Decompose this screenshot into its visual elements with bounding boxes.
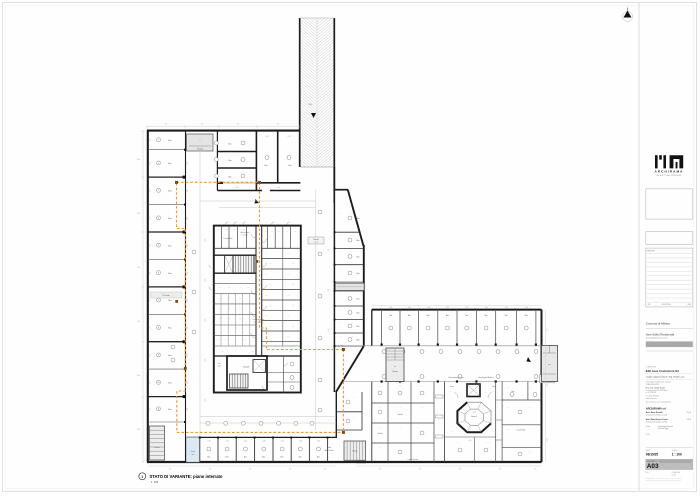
svg-text:1: 1: [141, 475, 143, 479]
svg-text:1.30: 1.30: [328, 248, 330, 251]
svg-text:1.48: 1.48: [265, 315, 268, 317]
svg-text:1.48: 1.48: [287, 315, 290, 317]
svg-text:1.48: 1.48: [449, 391, 452, 393]
svg-text:11: 11: [158, 409, 160, 411]
svg-text:1.2: 1.2: [351, 322, 353, 324]
svg-text:1.2: 1.2: [340, 251, 342, 253]
svg-text:5.00: 5.00: [187, 381, 189, 384]
svg-text:DESCRIZIONE: DESCRIZIONE: [662, 304, 671, 306]
svg-text:2.74: 2.74: [150, 326, 152, 329]
svg-text:06/10/25: 06/10/25: [646, 452, 659, 456]
svg-text:Box: Box: [356, 240, 359, 242]
svg-text:FIRMA: FIRMA: [686, 411, 690, 414]
svg-text:1.48: 1.48: [228, 287, 231, 289]
svg-text:Arch. Marco Rondelli: Arch. Marco Rondelli: [646, 411, 663, 414]
svg-text:1.48: 1.48: [233, 229, 236, 231]
svg-text:Box: Box: [168, 300, 171, 302]
svg-text:9: 9: [158, 355, 159, 357]
svg-text:Box: Box: [299, 457, 302, 459]
svg-text:REV.: REV.: [648, 304, 652, 306]
svg-text:Sup. 22.15mq: Sup. 22.15mq: [254, 322, 264, 324]
svg-text:3.20: 3.20: [547, 438, 549, 441]
svg-text:Box: Box: [168, 382, 171, 384]
svg-text:2.48: 2.48: [289, 469, 292, 471]
svg-text:2.48: 2.48: [249, 469, 252, 471]
svg-text:1.48: 1.48: [287, 295, 290, 297]
svg-text:Cantina: Cantina: [377, 432, 383, 435]
svg-text:4.08: 4.08: [469, 440, 472, 442]
svg-text:2.48: 2.48: [299, 441, 302, 443]
svg-text:2.48: 2.48: [262, 441, 265, 443]
svg-text:4: 4: [158, 218, 159, 220]
svg-text:1.48: 1.48: [421, 407, 424, 409]
svg-text:1.48: 1.48: [487, 442, 490, 444]
svg-text:1.48: 1.48: [225, 229, 228, 231]
svg-text:1.48: 1.48: [292, 263, 295, 265]
svg-text:5.00: 5.00: [187, 326, 189, 329]
svg-text:2.18: 2.18: [534, 469, 537, 471]
svg-text:2.74: 2.74: [150, 354, 152, 357]
svg-text:Scala B: Scala B: [243, 367, 250, 369]
svg-text:4.50: 4.50: [205, 238, 207, 241]
svg-text:Box: Box: [408, 315, 411, 317]
svg-text:2.48: 2.48: [408, 307, 411, 309]
svg-text:1.48: 1.48: [269, 263, 272, 265]
svg-text:8: 8: [158, 327, 159, 329]
svg-text:1.48: 1.48: [379, 386, 382, 388]
svg-text:Nave Edifici Residenziali: Nave Edifici Residenziali: [646, 333, 675, 337]
svg-text:1 : 100: 1 : 100: [672, 452, 682, 456]
svg-text:Box: Box: [281, 457, 284, 459]
svg-text:2.18: 2.18: [459, 469, 462, 471]
svg-text:Box: Box: [356, 218, 359, 220]
svg-text:2.48: 2.48: [244, 441, 247, 443]
svg-text:2.48: 2.48: [209, 469, 212, 471]
svg-text:Box: Box: [168, 409, 171, 411]
svg-text:5.00: 5.00: [187, 408, 189, 411]
svg-text:1.48: 1.48: [239, 308, 242, 310]
svg-text:1.2: 1.2: [340, 213, 342, 215]
svg-text:2.48: 2.48: [324, 469, 327, 471]
svg-text:2.48: 2.48: [446, 307, 449, 309]
svg-text:1.48: 1.48: [457, 442, 460, 444]
svg-text:STATO DI VARIANTE: piano inter: STATO DI VARIANTE: piano interrato: [150, 474, 223, 479]
svg-text:2.50: 2.50: [137, 267, 140, 269]
svg-text:1.48: 1.48: [269, 326, 272, 328]
svg-text:1.48: 1.48: [217, 229, 220, 231]
svg-text:1.48: 1.48: [292, 326, 295, 328]
svg-text:5.00: 5.00: [187, 354, 189, 357]
svg-text:1.48: 1.48: [399, 407, 402, 409]
svg-text:2.50: 2.50: [137, 375, 140, 377]
svg-text:1.48: 1.48: [292, 305, 295, 307]
svg-text:Box: Box: [228, 144, 231, 146]
svg-text:Box: Box: [168, 163, 171, 165]
svg-text:Box: Box: [228, 160, 231, 162]
svg-text:Box: Box: [168, 245, 171, 247]
svg-text:rev. 02: rev. 02: [672, 474, 676, 476]
svg-text:Locale Filtri: Locale Filtri: [224, 237, 233, 240]
svg-text:Box: Box: [168, 140, 171, 142]
svg-text:Antincendio: Antincendio: [241, 231, 250, 234]
svg-text:3.20: 3.20: [547, 328, 549, 331]
svg-text:2.48: 2.48: [277, 124, 280, 126]
svg-text:1.06: 1.06: [236, 187, 239, 189]
svg-text:1.48: 1.48: [217, 339, 220, 341]
svg-text:2.50: 2.50: [137, 321, 140, 323]
svg-text:Vano Impianti Elettrico: Vano Impianti Elettrico: [478, 376, 494, 379]
svg-text:1.48: 1.48: [239, 318, 242, 320]
svg-text:1.2: 1.2: [353, 417, 355, 419]
svg-text:4.50: 4.50: [205, 318, 207, 321]
svg-text:ARCHITETTURA E INGEGNERIA: ARCHITETTURA E INGEGNERIA: [657, 174, 682, 177]
svg-text:1.48: 1.48: [289, 351, 292, 353]
svg-text:1.48: 1.48: [271, 231, 274, 233]
svg-text:1.2: 1.2: [340, 336, 342, 338]
svg-text:1.2: 1.2: [340, 269, 342, 271]
svg-text:1.48: 1.48: [228, 298, 231, 300]
svg-text:4.50: 4.50: [205, 278, 207, 281]
svg-text:Cantina: Cantina: [397, 413, 403, 416]
svg-text:P. Disab: P. Disab: [162, 295, 170, 297]
svg-text:1.48: 1.48: [225, 339, 228, 341]
svg-text:Box: Box: [505, 315, 508, 317]
svg-text:4.50: 4.50: [205, 358, 207, 361]
svg-text:1.48: 1.48: [265, 274, 268, 276]
svg-text:2.48: 2.48: [207, 441, 210, 443]
svg-text:2.48: 2.48: [389, 307, 392, 309]
svg-text:REVISIONI: REVISIONI: [647, 250, 655, 252]
svg-text:Moto e Disab: Moto e Disab: [325, 449, 334, 452]
svg-text:Locale Filtro: Locale Filtro: [517, 429, 526, 432]
svg-text:1.48: 1.48: [219, 298, 222, 300]
svg-text:1.48: 1.48: [221, 351, 224, 353]
svg-text:1.48: 1.48: [287, 274, 290, 276]
svg-text:Geom. Andrea Valsecchi: Geom. Andrea Valsecchi: [658, 425, 674, 428]
svg-text:5.00: 5.00: [187, 244, 189, 247]
svg-text:Box: Box: [264, 165, 267, 167]
svg-text:1.48: 1.48: [286, 231, 289, 233]
svg-text:Edil Luce Costruzioni Srl: Edil Luce Costruzioni Srl: [646, 369, 679, 373]
svg-text:Questo disegno e di proprieta: Questo disegno e di proprieta di ARCHIRA…: [646, 477, 682, 480]
svg-text:su: su: [394, 366, 396, 368]
svg-text:Box: Box: [446, 315, 449, 317]
svg-text:1.48: 1.48: [399, 386, 402, 388]
svg-text:Box: Box: [168, 355, 171, 357]
svg-text:Uscita: Uscita: [155, 446, 160, 449]
svg-text:1.48: 1.48: [507, 387, 510, 389]
svg-text:CREAZIONE: CREAZIONE: [672, 471, 680, 474]
svg-text:1.48: 1.48: [507, 407, 510, 409]
svg-text:Via Paolo Alberto Besozzi 21-2: Via Paolo Alberto Besozzi 21-23: [646, 336, 668, 339]
svg-text:Box: Box: [465, 315, 468, 317]
svg-text:1.48: 1.48: [379, 427, 382, 429]
svg-text:7: 7: [158, 300, 159, 302]
svg-text:2.74: 2.74: [150, 381, 152, 384]
svg-text:1.48: 1.48: [421, 386, 424, 388]
svg-text:2.74: 2.74: [150, 244, 152, 247]
svg-text:2.74: 2.74: [150, 189, 152, 192]
svg-text:+0.00: +0.00: [472, 412, 476, 414]
svg-text:1.48: 1.48: [379, 407, 382, 409]
svg-text:Collab.:: Collab.:: [646, 426, 651, 428]
svg-text:Box: Box: [207, 457, 210, 459]
svg-text:1.48: 1.48: [228, 308, 231, 310]
svg-text:Box: Box: [356, 298, 359, 300]
svg-text:5.00: 5.00: [187, 299, 189, 302]
svg-text:10%: 10%: [314, 242, 318, 244]
svg-text:2.48: 2.48: [169, 469, 172, 471]
svg-text:Sede legale: Via Milano 10, Co: Sede legale: Via Milano 10, Cormano: [646, 381, 671, 384]
svg-text:1.48: 1.48: [228, 318, 231, 320]
svg-text:1.48: 1.48: [251, 351, 254, 353]
svg-text:1.30: 1.30: [328, 288, 330, 291]
svg-text:1.2: 1.2: [340, 322, 342, 324]
svg-text:2.48: 2.48: [281, 441, 284, 443]
svg-text:2.48: 2.48: [226, 441, 229, 443]
svg-text:1.19: 1.19: [265, 136, 268, 138]
svg-text:interno: interno: [242, 234, 247, 237]
svg-text:Rampa: Rampa: [352, 451, 357, 453]
svg-text:Box: Box: [168, 328, 171, 330]
svg-text:Box: Box: [168, 273, 171, 275]
svg-text:Cont.: Cont.: [218, 365, 222, 368]
svg-text:Box: Box: [226, 457, 229, 459]
svg-text:1.48: 1.48: [247, 287, 250, 289]
svg-text:1.2: 1.2: [351, 235, 353, 237]
svg-text:Box: Box: [168, 218, 171, 220]
svg-text:1.44: 1.44: [277, 187, 280, 189]
svg-text:5: 5: [158, 245, 159, 247]
svg-text:1.48: 1.48: [491, 431, 494, 433]
svg-text:2.48: 2.48: [237, 124, 240, 126]
svg-text:5.00: 5.00: [187, 217, 189, 220]
svg-text:5.00: 5.00: [187, 272, 189, 275]
svg-text:1.2: 1.2: [351, 293, 353, 295]
svg-text:Box: Box: [244, 457, 247, 459]
svg-text:Arch. Maria Rosaria Cortesi: Arch. Maria Rosaria Cortesi: [646, 418, 669, 421]
svg-text:Prot. arch. - Studio Tecnico: Prot. arch. - Studio Tecnico: [646, 387, 665, 390]
svg-text:1.48: 1.48: [269, 284, 272, 286]
svg-text:1.48: 1.48: [529, 407, 532, 409]
svg-text:6: 6: [158, 272, 159, 274]
svg-text:2: 2: [158, 163, 159, 165]
svg-text:1.48: 1.48: [507, 429, 510, 431]
svg-text:Rampa: Rampa: [392, 371, 398, 373]
svg-text:10%: 10%: [308, 104, 312, 106]
svg-text:www.archirama.it - pec archira: www.archirama.it - pec archirama@pec.it: [646, 400, 672, 403]
svg-text:1.2: 1.2: [340, 293, 342, 295]
svg-text:Box: Box: [356, 312, 359, 314]
svg-text:Box: Box: [389, 315, 392, 317]
svg-text:1.48: 1.48: [399, 427, 402, 429]
svg-text:1.48: 1.48: [219, 308, 222, 310]
svg-text:1.48: 1.48: [451, 431, 454, 433]
svg-text:1.48: 1.48: [287, 336, 290, 338]
svg-text:Rampa: Rampa: [313, 239, 319, 241]
svg-text:1.2: 1.2: [353, 397, 355, 399]
svg-text:tel. +39 02 87654321: tel. +39 02 87654321: [646, 395, 659, 398]
svg-text:Scala C: Scala C: [471, 416, 478, 418]
svg-text:1.48: 1.48: [269, 305, 272, 307]
svg-text:2.50: 2.50: [137, 159, 140, 161]
svg-text:2.74: 2.74: [150, 272, 152, 275]
svg-text:Box: Box: [525, 315, 528, 317]
svg-text:1.2: 1.2: [351, 269, 353, 271]
svg-text:2.50: 2.50: [137, 213, 140, 215]
svg-text:1.48: 1.48: [243, 339, 246, 341]
svg-text:Box: Box: [317, 457, 320, 459]
svg-text:ARCHIRAMA srl: ARCHIRAMA srl: [646, 406, 666, 410]
svg-text:2.48: 2.48: [201, 124, 204, 126]
svg-text:1.2: 1.2: [351, 251, 353, 253]
svg-text:1.48: 1.48: [287, 253, 290, 255]
svg-text:2.18: 2.18: [499, 469, 502, 471]
svg-text:1.48: 1.48: [294, 231, 297, 233]
svg-text:Box: Box: [228, 177, 231, 179]
svg-text:1.48: 1.48: [242, 229, 245, 231]
svg-text:1.48: 1.48: [219, 287, 222, 289]
svg-text:1.48: 1.48: [529, 451, 532, 453]
svg-text:2.48: 2.48: [505, 307, 508, 309]
svg-text:2.74: 2.74: [150, 162, 152, 165]
svg-text:2.48: 2.48: [485, 307, 488, 309]
svg-text:Uscita: Uscita: [450, 385, 454, 388]
svg-text:1.48: 1.48: [292, 284, 295, 286]
svg-text:5.00: 5.00: [187, 189, 189, 192]
svg-text:2.74: 2.74: [150, 408, 152, 411]
svg-text:Box: Box: [168, 190, 171, 192]
svg-text:Box: Box: [485, 315, 488, 317]
svg-text:2.48: 2.48: [427, 307, 430, 309]
svg-text:1.48: 1.48: [271, 351, 274, 353]
svg-text:ARCHIRAMA: ARCHIRAMA: [655, 170, 684, 174]
svg-text:Box: Box: [356, 326, 359, 328]
svg-text:Box: Box: [262, 457, 265, 459]
svg-text:2.50: 2.50: [137, 429, 140, 431]
svg-text:1.48: 1.48: [491, 391, 494, 393]
svg-text:Ing. Paola Maggi: Ing. Paola Maggi: [658, 428, 669, 430]
svg-text:2.74: 2.74: [150, 217, 152, 220]
svg-text:2.48: 2.48: [465, 307, 468, 309]
svg-text:1.48: 1.48: [239, 287, 242, 289]
svg-text:Box: Box: [288, 165, 291, 167]
svg-text:1.48: 1.48: [264, 231, 267, 233]
svg-text:1.48: 1.48: [239, 298, 242, 300]
svg-text:FIRMA: FIRMA: [686, 418, 690, 421]
svg-text:1.48: 1.48: [278, 231, 281, 233]
svg-text:Rampa: Rampa: [197, 149, 204, 151]
svg-text:1.2: 1.2: [340, 309, 342, 311]
svg-text:Legale rappresentante: Sig. Pa: Legale rappresentante: Sig. Paolo Luce: [646, 376, 685, 379]
svg-text:2.48: 2.48: [525, 307, 528, 309]
svg-text:1.48: 1.48: [265, 295, 268, 297]
svg-text:Box: Box: [356, 256, 359, 258]
svg-text:1: 1: [158, 140, 159, 142]
svg-text:2.48: 2.48: [317, 441, 320, 443]
svg-text:Loc.: Loc.: [218, 363, 221, 365]
svg-text:Box: Box: [427, 315, 430, 317]
svg-text:2.48: 2.48: [165, 124, 168, 126]
svg-text:2.74: 2.74: [150, 299, 152, 302]
svg-text:Box: Box: [356, 339, 359, 341]
svg-text:3.20: 3.20: [547, 383, 549, 386]
svg-text:1.15: 1.15: [287, 136, 290, 138]
svg-text:2.74: 2.74: [150, 139, 152, 142]
svg-text:FILE: FILE: [646, 472, 649, 474]
svg-text:1.2: 1.2: [340, 235, 342, 237]
svg-text:Box: Box: [356, 273, 359, 275]
svg-text:2.18: 2.18: [419, 469, 422, 471]
svg-text:1.2: 1.2: [351, 309, 353, 311]
svg-text:Locale Imposta: Locale Imposta: [253, 318, 265, 321]
svg-text:1.30: 1.30: [328, 328, 330, 331]
svg-text:1.2: 1.2: [351, 213, 353, 215]
svg-text:4.50: 4.50: [205, 398, 207, 401]
svg-text:Comune di Milano: Comune di Milano: [646, 322, 671, 326]
svg-text:1.48: 1.48: [219, 318, 222, 320]
svg-text:asc: asc: [548, 364, 551, 366]
svg-text:3: 3: [158, 190, 159, 192]
svg-text:5.00: 5.00: [187, 162, 189, 165]
svg-text:1 : 100: 1 : 100: [151, 481, 159, 484]
svg-text:A03: A03: [647, 463, 659, 470]
svg-text:1.48: 1.48: [379, 447, 382, 449]
svg-text:1.2: 1.2: [351, 336, 353, 338]
svg-text:1.48: 1.48: [265, 253, 268, 255]
svg-text:10: 10: [158, 382, 160, 384]
svg-text:DATA: DATA: [688, 303, 691, 306]
svg-text:1.48: 1.48: [529, 387, 532, 389]
svg-text:2.18: 2.18: [379, 469, 382, 471]
svg-text:NOTE:: NOTE:: [646, 434, 651, 436]
svg-text:Locale Tecnico: Locale Tecnico: [408, 459, 419, 461]
